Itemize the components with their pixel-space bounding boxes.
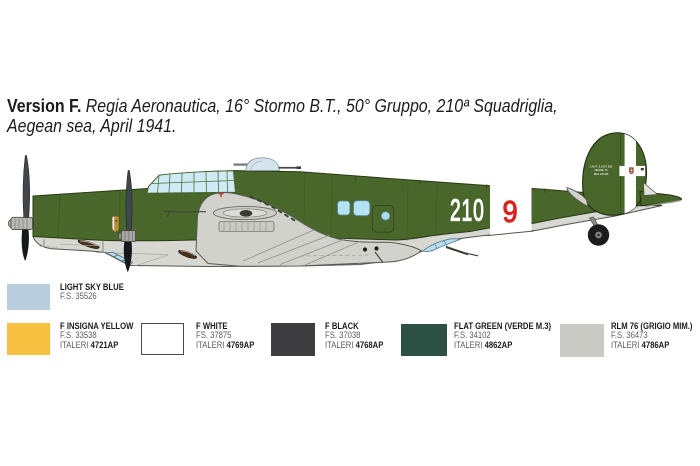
svg-text:MM 23248: MM 23248: [594, 172, 609, 176]
svg-text:210: 210: [450, 194, 485, 228]
svg-text:9: 9: [503, 195, 518, 229]
